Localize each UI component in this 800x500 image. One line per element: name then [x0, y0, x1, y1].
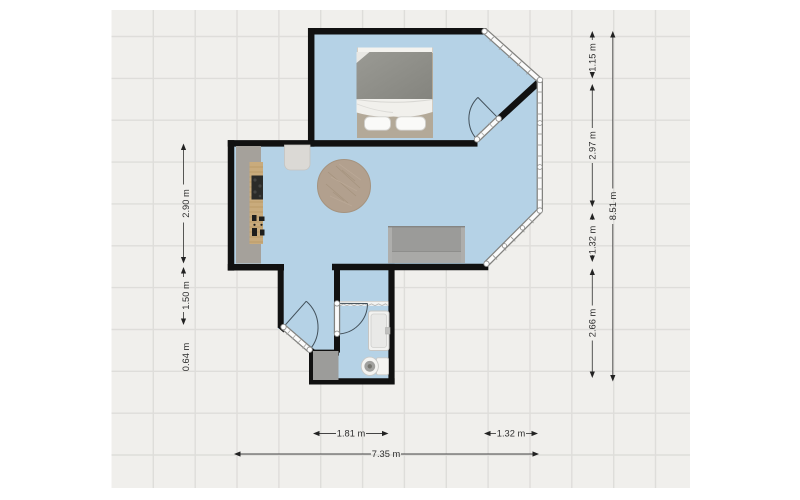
svg-text:1.32 m: 1.32 m — [497, 429, 526, 439]
svg-text:2.66 m: 2.66 m — [587, 309, 597, 338]
svg-text:1.32 m: 1.32 m — [587, 226, 597, 255]
svg-text:2.97 m: 2.97 m — [587, 131, 597, 160]
svg-text:8.51 m: 8.51 m — [608, 192, 618, 221]
svg-text:7.35 m: 7.35 m — [372, 449, 401, 459]
svg-text:1.50 m: 1.50 m — [181, 281, 191, 310]
svg-text:1.15 m: 1.15 m — [587, 43, 597, 72]
svg-text:1.81 m: 1.81 m — [337, 429, 366, 439]
svg-text:0.64 m: 0.64 m — [181, 343, 191, 372]
svg-text:2.90 m: 2.90 m — [181, 189, 191, 218]
